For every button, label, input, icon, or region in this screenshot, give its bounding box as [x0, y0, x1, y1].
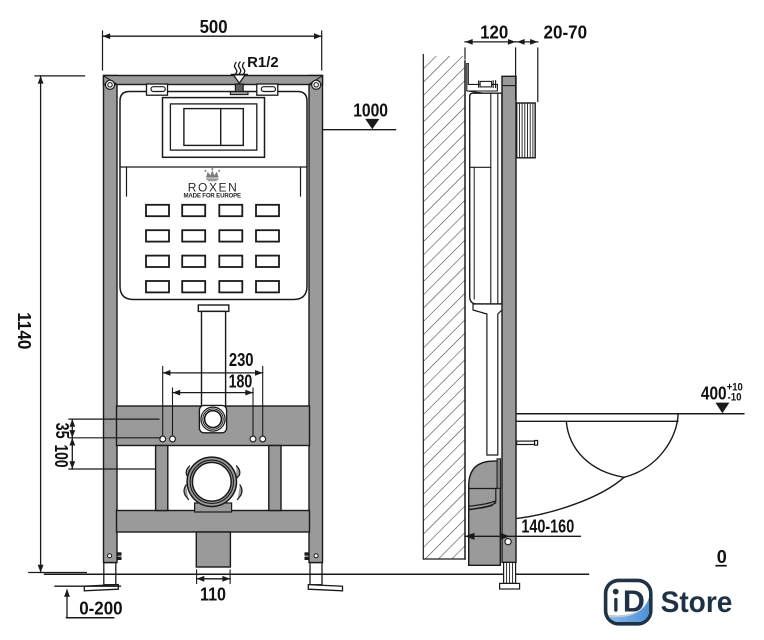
svg-text:400: 400 — [701, 384, 727, 404]
svg-text:1140: 1140 — [14, 312, 34, 349]
svg-text:100: 100 — [51, 444, 71, 467]
svg-text:D: D — [623, 585, 645, 619]
svg-text:120: 120 — [480, 22, 508, 42]
svg-text:1000: 1000 — [353, 101, 388, 121]
svg-text:0-200: 0-200 — [79, 598, 122, 618]
svg-text:500: 500 — [200, 17, 228, 37]
svg-text:230: 230 — [229, 350, 254, 370]
svg-text:-10: -10 — [728, 392, 742, 404]
svg-text:180: 180 — [229, 371, 253, 391]
svg-text:35: 35 — [52, 423, 72, 439]
svg-text:110: 110 — [200, 584, 226, 604]
svg-text:R1/2: R1/2 — [247, 55, 278, 71]
svg-text:MADE FOR EUROPE: MADE FOR EUROPE — [184, 193, 242, 200]
svg-text:20-70: 20-70 — [544, 22, 588, 42]
svg-text:Store: Store — [661, 586, 733, 619]
svg-text:0: 0 — [717, 547, 727, 567]
svg-text:140-160: 140-160 — [521, 516, 574, 536]
